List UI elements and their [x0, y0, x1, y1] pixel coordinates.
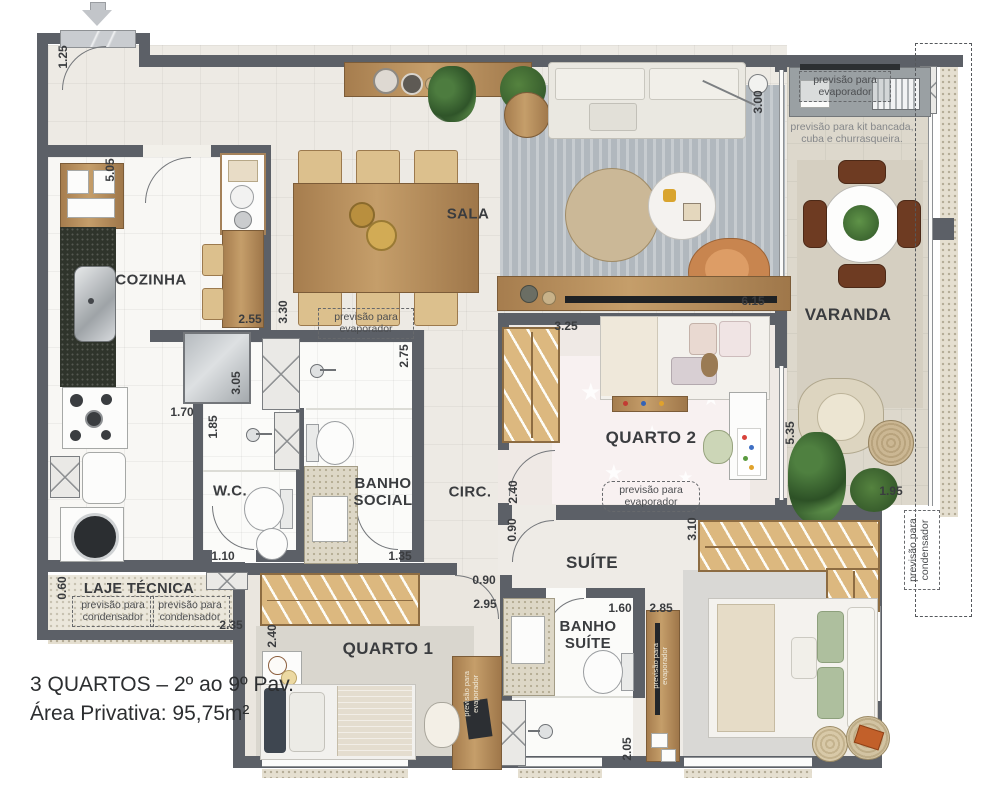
shaft [500, 700, 526, 766]
note-kit-churrasqueira: previsão para kit bancada, cuba e churra… [786, 119, 918, 148]
cabinet-drawer [661, 749, 676, 762]
pillow-green [817, 667, 844, 719]
dim-wc-width: 1.10 [211, 549, 234, 563]
bs-toilet [316, 421, 354, 465]
quarto2-bed [600, 316, 770, 400]
dim-kitchen-length: 5.05 [103, 158, 117, 181]
wall [233, 560, 245, 768]
room-label-suite: SUÍTE [566, 553, 618, 573]
dim-quarto2-door: 2.40 [506, 480, 520, 503]
dim-suite-width: 3.10 [685, 517, 699, 540]
room-label-quarto1: QUARTO 1 [343, 639, 434, 659]
note-evaporador-sala: previsão para evaporador [318, 308, 414, 339]
drawing-dot [749, 445, 754, 450]
kitchen-appliance [67, 198, 115, 218]
wall [412, 330, 424, 562]
drawing-dot [743, 456, 748, 461]
teddy-bear [701, 353, 718, 377]
bbq-hood [800, 64, 900, 70]
room-label-banho-social: BANHO SOCIAL [343, 476, 423, 510]
note-evaporador-varanda: previsão para evaporador [799, 71, 891, 102]
note-condensador-right: previsão para condensador [904, 510, 940, 590]
shaft [274, 412, 300, 470]
toy [659, 401, 664, 406]
sofa-cushion [555, 68, 645, 100]
window-banho-suite [518, 757, 602, 767]
window-suite [684, 757, 812, 767]
wall [193, 398, 203, 562]
pillow [689, 323, 717, 355]
suite-bed [708, 598, 878, 738]
dim-circ-opening: 0.90 [505, 518, 519, 541]
dim-kitchen-door: 3.05 [229, 371, 243, 394]
wall [37, 33, 48, 640]
burner [101, 394, 112, 405]
dim-varanda-width: 1.95 [879, 484, 902, 498]
dining-chair [356, 150, 400, 185]
dining-chair [414, 150, 458, 185]
dim-quarto1-door: 0.90 [472, 573, 495, 587]
counter-decor [228, 160, 258, 182]
sliding-glass-sala-varanda [779, 70, 784, 302]
wc-toilet [244, 487, 284, 531]
floor-plan: ★ ★ ★ ★ ★ [0, 0, 1000, 800]
room-label-quarto2: QUARTO 2 [606, 428, 697, 448]
table-decor [663, 189, 676, 202]
window-sill [518, 769, 602, 778]
plant [428, 66, 476, 122]
wicker-side-table [868, 420, 914, 466]
wall [633, 590, 645, 698]
bsuite-toilet [583, 650, 623, 694]
wc-shower-arm [256, 433, 272, 435]
drawing-dot [742, 435, 747, 440]
stove [62, 387, 128, 449]
dining-chair [298, 150, 342, 185]
dim-suite-entry: 2.85 [649, 601, 672, 615]
room-label-sala: SALA [447, 206, 489, 223]
burner [70, 394, 83, 407]
quarto2-wardrobe [502, 327, 560, 443]
suite-pouf [812, 726, 848, 762]
bed-blanket [337, 686, 412, 756]
plan-title-line2: Área Privativa: 95,75m² [30, 702, 249, 726]
entry-arrow-icon [82, 10, 112, 26]
bs-divider-line [306, 408, 412, 410]
note-evaporador-suite-cabinet: previsão para evaporador [652, 626, 670, 706]
pillow-white [791, 637, 817, 679]
kitchen-chair [202, 288, 224, 320]
room-label-wc: W.C. [213, 483, 247, 500]
varanda-chair [838, 264, 886, 288]
kitchen-appliance [67, 170, 89, 194]
plan-title-line1: 3 QUARTOS – 2º ao 9º Pav. [30, 673, 294, 697]
dim-wc-length: 1.85 [206, 415, 220, 438]
table-decor [683, 203, 701, 221]
quarto1-chair [424, 702, 460, 748]
quarto2-chair [703, 430, 733, 464]
dining-chair [414, 291, 458, 326]
varanda-centerpiece-plant [843, 205, 879, 241]
pillow-green [817, 611, 844, 663]
bed-blanket [717, 604, 775, 732]
coffee-table-jute [565, 168, 659, 262]
wall [37, 630, 244, 640]
varanda-chair [803, 200, 827, 248]
room-label-cozinha: COZINHA [115, 272, 186, 289]
note-condensador-laje-1: previsão para condensador [72, 596, 154, 627]
suite-wardrobe [698, 520, 880, 572]
dim-banho-social-length: 2.75 [397, 344, 411, 367]
door-gap [546, 588, 586, 598]
note-evaporador-quarto1-desk: previsão para evaporador [463, 662, 481, 726]
washer-door [71, 513, 119, 561]
pillow [719, 321, 751, 357]
dim-sala-length: 6.15 [741, 294, 764, 308]
dim-kitchen-table: 2.55 [238, 312, 261, 326]
window-sill [684, 769, 812, 778]
dim-quarto2-width: 3.25 [554, 319, 577, 333]
laundry-tank [82, 452, 126, 504]
wc-shower-head [246, 428, 260, 442]
coffee-table-white [648, 172, 716, 240]
plate-decor [401, 73, 423, 95]
bed-blanket [601, 317, 658, 396]
bs-shower-arm [320, 369, 336, 371]
pillow-dark [264, 688, 286, 753]
dim-banho-social-width: 1.35 [388, 549, 411, 563]
toy [623, 401, 628, 406]
bsuite-sink [511, 616, 545, 664]
toy [641, 401, 646, 406]
room-label-banho-suite: BANHO SUÍTE [548, 619, 628, 653]
bsuite-shower-head [538, 724, 553, 739]
sofa [548, 62, 746, 139]
side-table [504, 92, 550, 138]
quarto1-wardrobe [260, 573, 420, 626]
kitchen-coffee-counter [220, 153, 266, 235]
counter-drain [234, 211, 252, 229]
wc-sink [256, 528, 288, 560]
entry-door [60, 30, 136, 48]
star-icon: ★ [580, 378, 602, 407]
burner [70, 430, 81, 441]
dim-kitchen-width: 1.70 [170, 405, 193, 419]
cabinet-drawer [651, 733, 668, 748]
room-label-circ: CIRC. [449, 484, 492, 501]
burner [101, 430, 111, 440]
note-evaporador-quarto2: previsão para evaporador [602, 481, 700, 512]
drawing-dot [749, 465, 754, 470]
dim-entry: 1.25 [56, 45, 70, 68]
room-label-varanda: VARANDA [805, 305, 892, 325]
plate-decor [373, 68, 399, 94]
bsuite-divider-line [512, 696, 633, 698]
kids-drawings [737, 428, 761, 476]
console-decor [542, 291, 556, 305]
sofa-cushion [649, 68, 739, 100]
dim-hall-width: 3.30 [276, 300, 290, 323]
shaft [206, 572, 248, 590]
door-gap [143, 145, 211, 157]
kitchen-chair [202, 244, 224, 276]
kitchen-sink [74, 266, 116, 342]
floor-circ [424, 330, 498, 576]
dim-varanda-length: 5.35 [783, 421, 797, 444]
dim-quarto1-length: 2.40 [265, 624, 279, 647]
dim-sala-width: 3.00 [751, 90, 765, 113]
divider-line [203, 470, 296, 472]
bsuite-shower-arm [528, 730, 540, 732]
plant [788, 432, 846, 524]
shaft [262, 338, 300, 410]
dim-banho-suite-width: 1.60 [608, 601, 631, 615]
table-decor-gold [366, 220, 397, 251]
dim-quarto1-width: 2.95 [473, 597, 496, 611]
bs-shower-head [310, 364, 324, 378]
dim-laje-width: 0.60 [55, 576, 69, 599]
window-sill [262, 769, 408, 778]
dining-table [293, 183, 479, 293]
dim-banho-suite-length: 2.05 [620, 737, 634, 760]
note-condensador-laje-2: previsão para condensador [150, 596, 230, 627]
kitchen-faucet [88, 298, 94, 304]
room-label-laje-tecnica: LAJE TÉCNICA [84, 581, 194, 597]
pillow-white [847, 607, 875, 729]
counter-sink-round [230, 185, 254, 209]
burner [85, 410, 103, 428]
sofa-cushion [589, 103, 637, 131]
varanda-chair [838, 160, 886, 184]
wall [775, 498, 787, 520]
pillow-white [289, 692, 325, 752]
shaft [50, 456, 80, 498]
toy-box [612, 396, 688, 412]
console-decor [520, 285, 538, 303]
washing-machine [60, 507, 124, 562]
